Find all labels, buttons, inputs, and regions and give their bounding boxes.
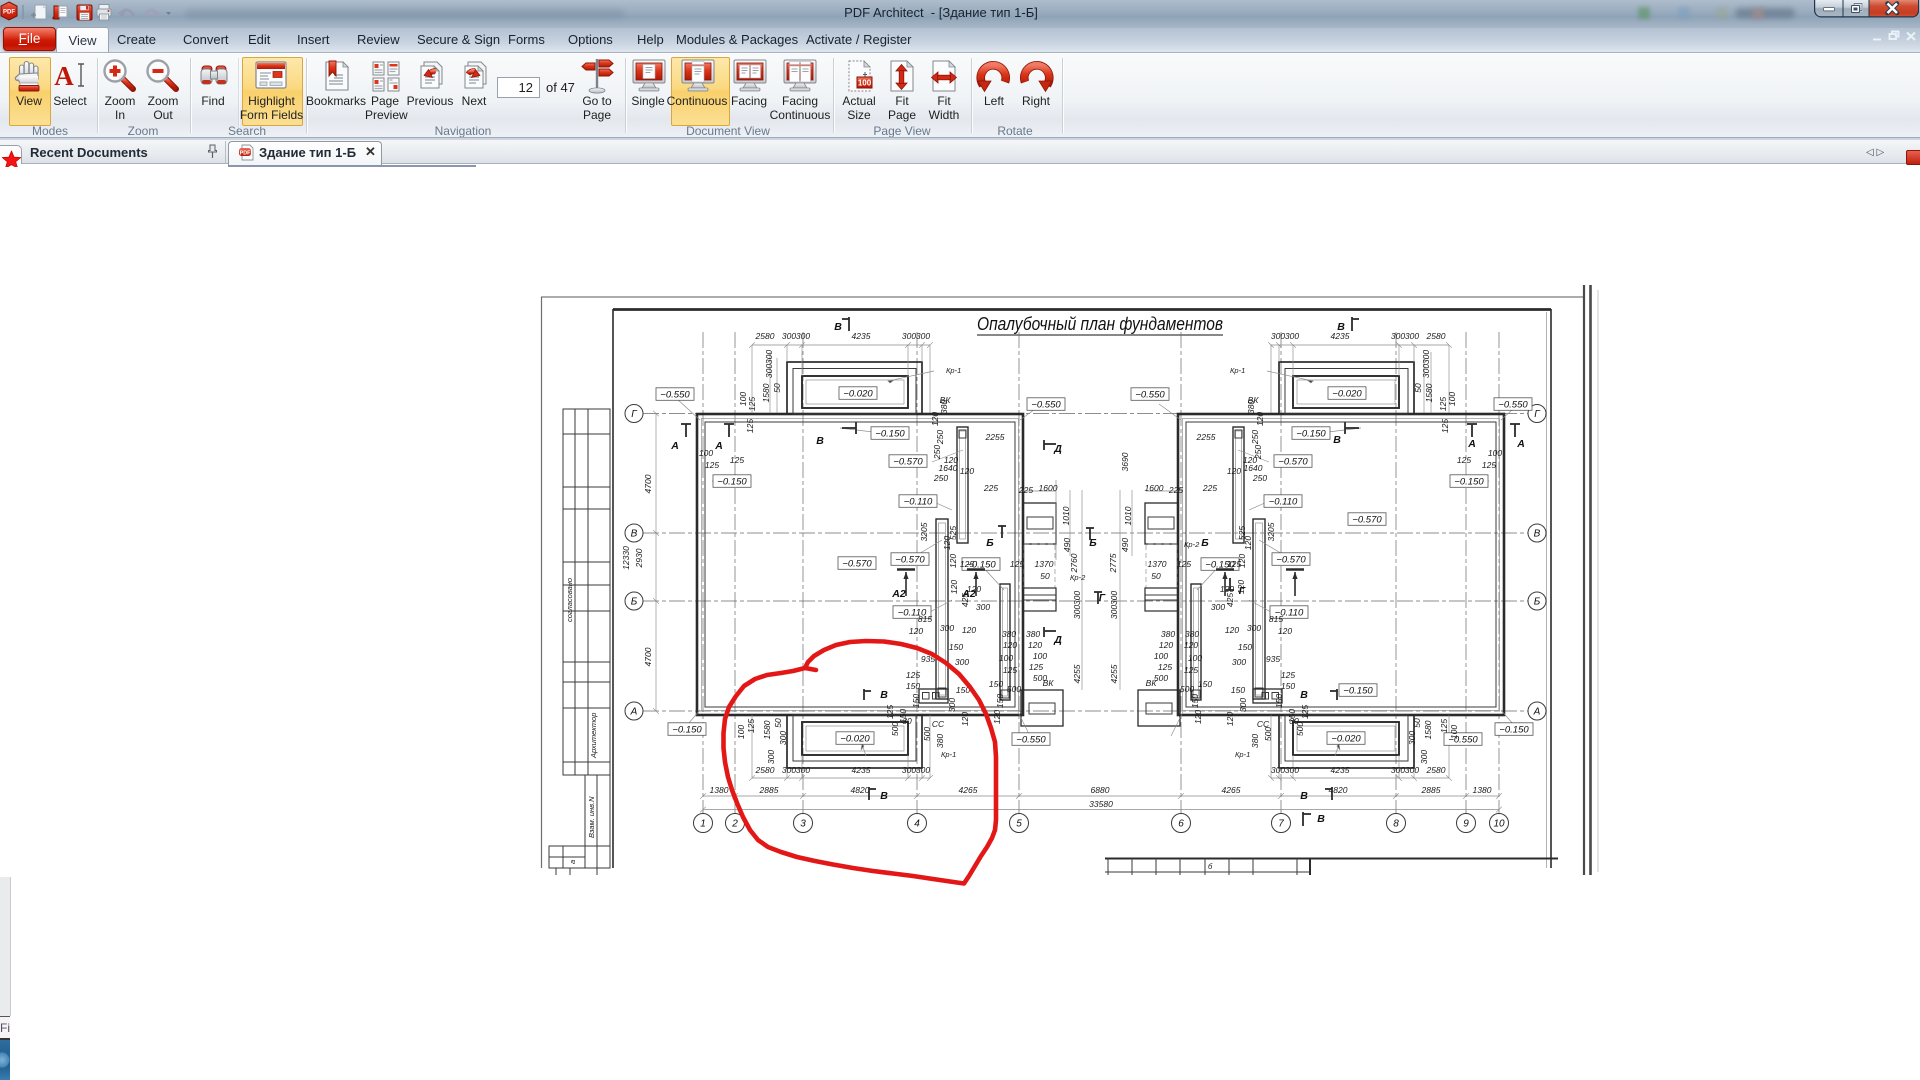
svg-text:2930: 2930 xyxy=(634,548,644,568)
svg-text:30: 30 xyxy=(1289,716,1299,726)
svg-text:125: 125 xyxy=(1300,705,1310,719)
svg-text:125: 125 xyxy=(885,705,895,719)
svg-text:120: 120 xyxy=(1159,640,1173,650)
svg-text:150: 150 xyxy=(1274,694,1284,708)
svg-text:300: 300 xyxy=(764,350,774,364)
svg-text:500: 500 xyxy=(1007,684,1021,694)
svg-text:150: 150 xyxy=(1238,642,1252,652)
svg-text:125: 125 xyxy=(1177,559,1191,569)
svg-text:300: 300 xyxy=(1072,605,1082,619)
svg-text:250: 250 xyxy=(932,445,942,460)
svg-text:300: 300 xyxy=(1238,698,1248,712)
svg-text:300: 300 xyxy=(902,331,916,341)
svg-text:Д: Д xyxy=(1053,443,1062,455)
svg-text:−0.020: −0.020 xyxy=(1332,389,1362,400)
svg-text:300: 300 xyxy=(782,331,796,341)
svg-text:100: 100 xyxy=(1154,651,1168,661)
svg-text:4265: 4265 xyxy=(959,785,978,795)
svg-text:100: 100 xyxy=(1033,651,1047,661)
svg-text:1: 1 xyxy=(700,819,706,830)
svg-text:4235: 4235 xyxy=(852,765,871,775)
svg-text:120: 120 xyxy=(960,466,974,476)
svg-text:1580: 1580 xyxy=(761,383,771,402)
svg-text:125: 125 xyxy=(705,460,719,470)
svg-text:150: 150 xyxy=(1231,685,1245,695)
svg-text:150: 150 xyxy=(911,694,921,708)
svg-text:−0.570: −0.570 xyxy=(842,559,872,570)
svg-text:2255: 2255 xyxy=(985,432,1005,442)
svg-text:120: 120 xyxy=(962,625,976,635)
svg-text:4: 4 xyxy=(914,819,920,830)
svg-text:380: 380 xyxy=(1185,629,1199,639)
svg-text:6: 6 xyxy=(1178,819,1184,830)
svg-text:1370: 1370 xyxy=(1148,559,1167,569)
svg-text:4255: 4255 xyxy=(1109,664,1119,683)
svg-text:ВК: ВК xyxy=(940,395,952,405)
svg-text:4255: 4255 xyxy=(1072,664,1082,683)
svg-text:−0.150: −0.150 xyxy=(1454,477,1484,488)
svg-text:1580: 1580 xyxy=(1423,720,1433,739)
svg-text:120: 120 xyxy=(1227,466,1241,476)
svg-text:ВК: ВК xyxy=(1248,395,1260,405)
svg-text:7: 7 xyxy=(1278,819,1284,830)
svg-text:125: 125 xyxy=(745,419,755,433)
svg-text:120: 120 xyxy=(960,712,970,726)
svg-text:150: 150 xyxy=(995,694,1005,708)
svg-text:120: 120 xyxy=(948,554,958,568)
svg-text:225: 225 xyxy=(1202,483,1217,493)
svg-text:3205: 3205 xyxy=(919,522,929,541)
svg-text:300: 300 xyxy=(1271,765,1285,775)
svg-text:120: 120 xyxy=(1278,626,1292,636)
svg-text:120: 120 xyxy=(1243,536,1253,550)
svg-text:а: а xyxy=(568,860,577,864)
svg-text:225: 225 xyxy=(1018,485,1033,495)
svg-text:150: 150 xyxy=(989,679,1003,689)
svg-text:100: 100 xyxy=(1447,392,1457,406)
svg-text:380: 380 xyxy=(1250,734,1260,748)
svg-text:А2: А2 xyxy=(891,588,906,600)
svg-text:300: 300 xyxy=(1405,765,1419,775)
svg-text:300: 300 xyxy=(796,765,810,775)
svg-text:50: 50 xyxy=(1413,383,1423,393)
svg-text:300: 300 xyxy=(1391,331,1405,341)
svg-text:120: 120 xyxy=(992,710,1002,724)
svg-text:Б: Б xyxy=(1534,597,1541,608)
svg-text:−0.570: −0.570 xyxy=(1278,457,1308,468)
svg-text:100: 100 xyxy=(699,448,713,458)
svg-text:−0.570: −0.570 xyxy=(893,457,923,468)
svg-text:В: В xyxy=(1534,529,1541,540)
svg-text:300: 300 xyxy=(796,331,810,341)
svg-text:1640: 1640 xyxy=(1244,463,1263,473)
svg-text:125: 125 xyxy=(1010,559,1024,569)
svg-text:500: 500 xyxy=(922,727,932,741)
svg-text:815: 815 xyxy=(1269,614,1283,624)
svg-text:125: 125 xyxy=(730,455,744,465)
svg-text:380: 380 xyxy=(1002,629,1016,639)
svg-text:−0.550: −0.550 xyxy=(1135,390,1165,401)
svg-text:8: 8 xyxy=(1393,819,1399,830)
svg-text:Кр-1: Кр-1 xyxy=(941,750,956,759)
svg-text:1580: 1580 xyxy=(762,720,772,739)
svg-text:1010: 1010 xyxy=(1061,506,1071,525)
svg-text:А2: А2 xyxy=(961,588,976,600)
svg-text:125: 125 xyxy=(1440,419,1450,433)
svg-text:50: 50 xyxy=(772,383,782,393)
svg-text:−0.020: −0.020 xyxy=(1331,734,1361,745)
svg-text:300: 300 xyxy=(1421,350,1431,364)
svg-text:2: 2 xyxy=(731,819,738,830)
svg-text:50: 50 xyxy=(773,718,783,728)
svg-text:125: 125 xyxy=(1158,662,1172,672)
svg-text:300: 300 xyxy=(916,765,930,775)
svg-text:935: 935 xyxy=(1266,654,1280,664)
svg-text:ВК: ВК xyxy=(1043,678,1055,688)
svg-text:300: 300 xyxy=(1247,623,1261,633)
svg-text:Кр-2: Кр-2 xyxy=(1184,540,1200,549)
svg-text:300: 300 xyxy=(1405,331,1419,341)
svg-text:Б: Б xyxy=(1089,537,1097,549)
svg-text:−0.570: −0.570 xyxy=(1276,555,1306,566)
svg-text:Г: Г xyxy=(1099,592,1106,604)
svg-text:300: 300 xyxy=(1391,765,1405,775)
svg-text:125: 125 xyxy=(1184,665,1198,675)
svg-text:Д: Д xyxy=(1053,634,1062,646)
svg-text:815: 815 xyxy=(918,614,932,624)
svg-text:300: 300 xyxy=(916,331,930,341)
svg-text:125: 125 xyxy=(1482,460,1496,470)
svg-text:согласовано: согласовано xyxy=(565,578,574,622)
svg-text:500: 500 xyxy=(1180,684,1194,694)
svg-text:100: 100 xyxy=(1488,448,1502,458)
svg-text:300: 300 xyxy=(1285,331,1299,341)
svg-text:490: 490 xyxy=(1062,538,1072,552)
svg-text:380: 380 xyxy=(1026,629,1040,639)
svg-text:4820: 4820 xyxy=(851,785,870,795)
svg-text:В: В xyxy=(880,689,888,701)
svg-text:А: А xyxy=(1533,707,1541,718)
svg-text:Б: Б xyxy=(1201,537,1209,549)
svg-text:В: В xyxy=(834,321,842,333)
svg-text:−0.020: −0.020 xyxy=(843,389,873,400)
svg-text:150: 150 xyxy=(1198,679,1212,689)
svg-text:−0.110: −0.110 xyxy=(904,497,933,508)
svg-text:100: 100 xyxy=(999,653,1013,663)
svg-text:В: В xyxy=(1333,434,1341,446)
svg-text:СС: СС xyxy=(932,719,945,729)
svg-text:300: 300 xyxy=(1109,605,1119,619)
svg-text:1600: 1600 xyxy=(1145,483,1164,493)
svg-text:−0.150: −0.150 xyxy=(1296,429,1326,440)
svg-text:490: 490 xyxy=(1120,538,1130,552)
svg-text:300: 300 xyxy=(1407,731,1417,745)
svg-text:−0.550: −0.550 xyxy=(1498,400,1528,411)
svg-text:150: 150 xyxy=(906,681,920,691)
svg-text:120: 120 xyxy=(1255,412,1265,426)
svg-text:2775: 2775 xyxy=(1108,553,1118,573)
svg-text:−0.110: −0.110 xyxy=(1269,497,1298,508)
svg-text:10: 10 xyxy=(1493,819,1505,830)
svg-text:2885: 2885 xyxy=(759,785,779,795)
svg-text:−0.570: −0.570 xyxy=(895,555,925,566)
svg-text:2580: 2580 xyxy=(1426,765,1446,775)
svg-text:125: 125 xyxy=(1457,455,1471,465)
svg-text:125: 125 xyxy=(1227,559,1241,569)
svg-text:Кр-1: Кр-1 xyxy=(1235,750,1250,759)
svg-text:120: 120 xyxy=(1220,584,1234,594)
svg-text:125: 125 xyxy=(1439,719,1449,733)
svg-text:300: 300 xyxy=(955,657,969,667)
svg-text:В: В xyxy=(1337,321,1345,333)
svg-text:−0.150: −0.150 xyxy=(875,429,905,440)
svg-text:6880: 6880 xyxy=(1091,785,1110,795)
svg-text:В: В xyxy=(631,529,638,540)
svg-text:−0.550: −0.550 xyxy=(660,390,690,401)
svg-text:300: 300 xyxy=(766,750,776,764)
svg-text:380: 380 xyxy=(1161,629,1175,639)
svg-text:300: 300 xyxy=(940,623,954,633)
svg-text:−0.570: −0.570 xyxy=(1352,515,1382,526)
svg-text:300: 300 xyxy=(1072,591,1082,605)
svg-text:300: 300 xyxy=(1109,591,1119,605)
svg-text:380: 380 xyxy=(935,734,945,748)
svg-text:−0.550: −0.550 xyxy=(1016,735,1046,746)
svg-text:1370: 1370 xyxy=(1035,559,1054,569)
svg-text:−0.150: −0.150 xyxy=(672,725,702,736)
svg-text:125: 125 xyxy=(1003,665,1017,675)
svg-text:150: 150 xyxy=(949,642,963,652)
svg-text:4700: 4700 xyxy=(643,474,653,493)
svg-text:120: 120 xyxy=(930,412,940,426)
svg-text:В: В xyxy=(1300,689,1308,701)
svg-text:В: В xyxy=(880,790,888,802)
svg-text:100: 100 xyxy=(1449,725,1459,739)
svg-text:120: 120 xyxy=(1225,625,1239,635)
svg-text:125: 125 xyxy=(746,719,756,733)
svg-text:150: 150 xyxy=(1190,694,1200,708)
svg-text:150: 150 xyxy=(1281,681,1295,691)
svg-text:А: А xyxy=(630,707,638,718)
svg-text:Г: Г xyxy=(1239,585,1246,597)
svg-text:300: 300 xyxy=(1419,750,1429,764)
svg-text:125: 125 xyxy=(960,559,974,569)
svg-text:120: 120 xyxy=(942,536,952,550)
svg-text:120: 120 xyxy=(1003,640,1017,650)
svg-text:12330: 12330 xyxy=(621,546,631,570)
svg-text:Б: Б xyxy=(631,597,638,608)
svg-text:100: 100 xyxy=(1188,653,1202,663)
svg-text:9: 9 xyxy=(1463,819,1469,830)
svg-text:1600: 1600 xyxy=(1039,483,1058,493)
svg-text:Б: Б xyxy=(986,537,994,549)
svg-text:300: 300 xyxy=(902,765,916,775)
svg-text:125: 125 xyxy=(906,670,920,680)
svg-text:−0.020: −0.020 xyxy=(840,734,870,745)
svg-text:50: 50 xyxy=(1412,718,1422,728)
svg-text:100: 100 xyxy=(736,725,746,739)
svg-text:33580: 33580 xyxy=(1089,799,1113,809)
svg-text:225: 225 xyxy=(1168,485,1183,495)
svg-text:250: 250 xyxy=(933,473,948,483)
svg-text:3205: 3205 xyxy=(1266,522,1276,541)
svg-text:4235: 4235 xyxy=(1331,765,1350,775)
svg-text:А: А xyxy=(1516,438,1525,450)
svg-text:2580: 2580 xyxy=(1426,331,1446,341)
svg-text:2580: 2580 xyxy=(755,331,775,341)
svg-text:−0.150: −0.150 xyxy=(717,477,747,488)
svg-text:125: 125 xyxy=(1438,397,1448,411)
svg-text:Опалубочный план фундаментов: Опалубочный план фундаментов xyxy=(977,313,1223,334)
svg-text:4265: 4265 xyxy=(1222,785,1241,795)
svg-text:300: 300 xyxy=(1285,765,1299,775)
svg-text:120: 120 xyxy=(1184,640,1198,650)
svg-text:−0.150: −0.150 xyxy=(1499,725,1529,736)
svg-text:120: 120 xyxy=(949,580,959,594)
svg-text:2760: 2760 xyxy=(1069,553,1079,573)
svg-text:Кр-1: Кр-1 xyxy=(1230,366,1245,375)
svg-text:50: 50 xyxy=(1151,571,1161,581)
svg-text:В: В xyxy=(1317,813,1325,825)
svg-text:А: А xyxy=(1467,438,1476,450)
svg-text:3: 3 xyxy=(800,819,806,830)
svg-text:300: 300 xyxy=(1421,364,1431,378)
svg-text:1010: 1010 xyxy=(1123,506,1133,525)
svg-text:300: 300 xyxy=(1271,331,1285,341)
svg-text:120: 120 xyxy=(1225,712,1235,726)
svg-text:1380: 1380 xyxy=(1473,785,1492,795)
svg-text:125: 125 xyxy=(1281,670,1295,680)
svg-text:1580: 1580 xyxy=(1424,383,1434,402)
svg-text:СС: СС xyxy=(1257,719,1270,729)
svg-text:4700: 4700 xyxy=(643,647,653,666)
svg-text:1380: 1380 xyxy=(710,785,729,795)
svg-text:В: В xyxy=(1300,790,1308,802)
svg-text:300: 300 xyxy=(947,698,957,712)
svg-text:250: 250 xyxy=(1252,473,1267,483)
svg-text:300: 300 xyxy=(1211,602,1225,612)
svg-text:А: А xyxy=(670,440,679,452)
svg-text:120: 120 xyxy=(1028,640,1042,650)
svg-text:−0.150: −0.150 xyxy=(1343,686,1373,697)
svg-text:30: 30 xyxy=(902,716,912,726)
svg-text:300: 300 xyxy=(782,765,796,775)
svg-text:А: А xyxy=(714,440,723,452)
svg-text:3690: 3690 xyxy=(1120,452,1130,471)
svg-text:Кр-2: Кр-2 xyxy=(1070,573,1086,582)
svg-text:120: 120 xyxy=(1193,710,1203,724)
svg-text:120: 120 xyxy=(909,626,923,636)
svg-text:425: 425 xyxy=(1225,593,1235,607)
svg-text:300: 300 xyxy=(778,731,788,745)
svg-text:50: 50 xyxy=(1040,571,1050,581)
svg-text:−0.550: −0.550 xyxy=(1031,400,1061,411)
svg-text:4235: 4235 xyxy=(852,331,871,341)
svg-text:300: 300 xyxy=(976,602,990,612)
svg-text:5: 5 xyxy=(1016,819,1022,830)
svg-text:2885: 2885 xyxy=(1421,785,1441,795)
svg-text:Взам. инв.N: Взам. инв.N xyxy=(587,796,596,838)
svg-text:225: 225 xyxy=(983,483,998,493)
svg-text:ВК: ВК xyxy=(1146,678,1158,688)
svg-text:300: 300 xyxy=(1232,657,1246,667)
svg-text:2580: 2580 xyxy=(755,765,775,775)
svg-text:В: В xyxy=(816,435,824,447)
svg-text:250: 250 xyxy=(1250,430,1260,445)
svg-text:250: 250 xyxy=(935,430,945,445)
svg-text:Архитектор: Архитектор xyxy=(589,713,598,759)
svg-text:300: 300 xyxy=(764,364,774,378)
svg-text:2255: 2255 xyxy=(1196,432,1216,442)
svg-text:б: б xyxy=(1208,862,1213,871)
svg-text:Кр-1: Кр-1 xyxy=(946,366,961,375)
svg-text:125: 125 xyxy=(1029,662,1043,672)
svg-text:1640: 1640 xyxy=(939,463,958,473)
svg-text:125: 125 xyxy=(747,397,757,411)
